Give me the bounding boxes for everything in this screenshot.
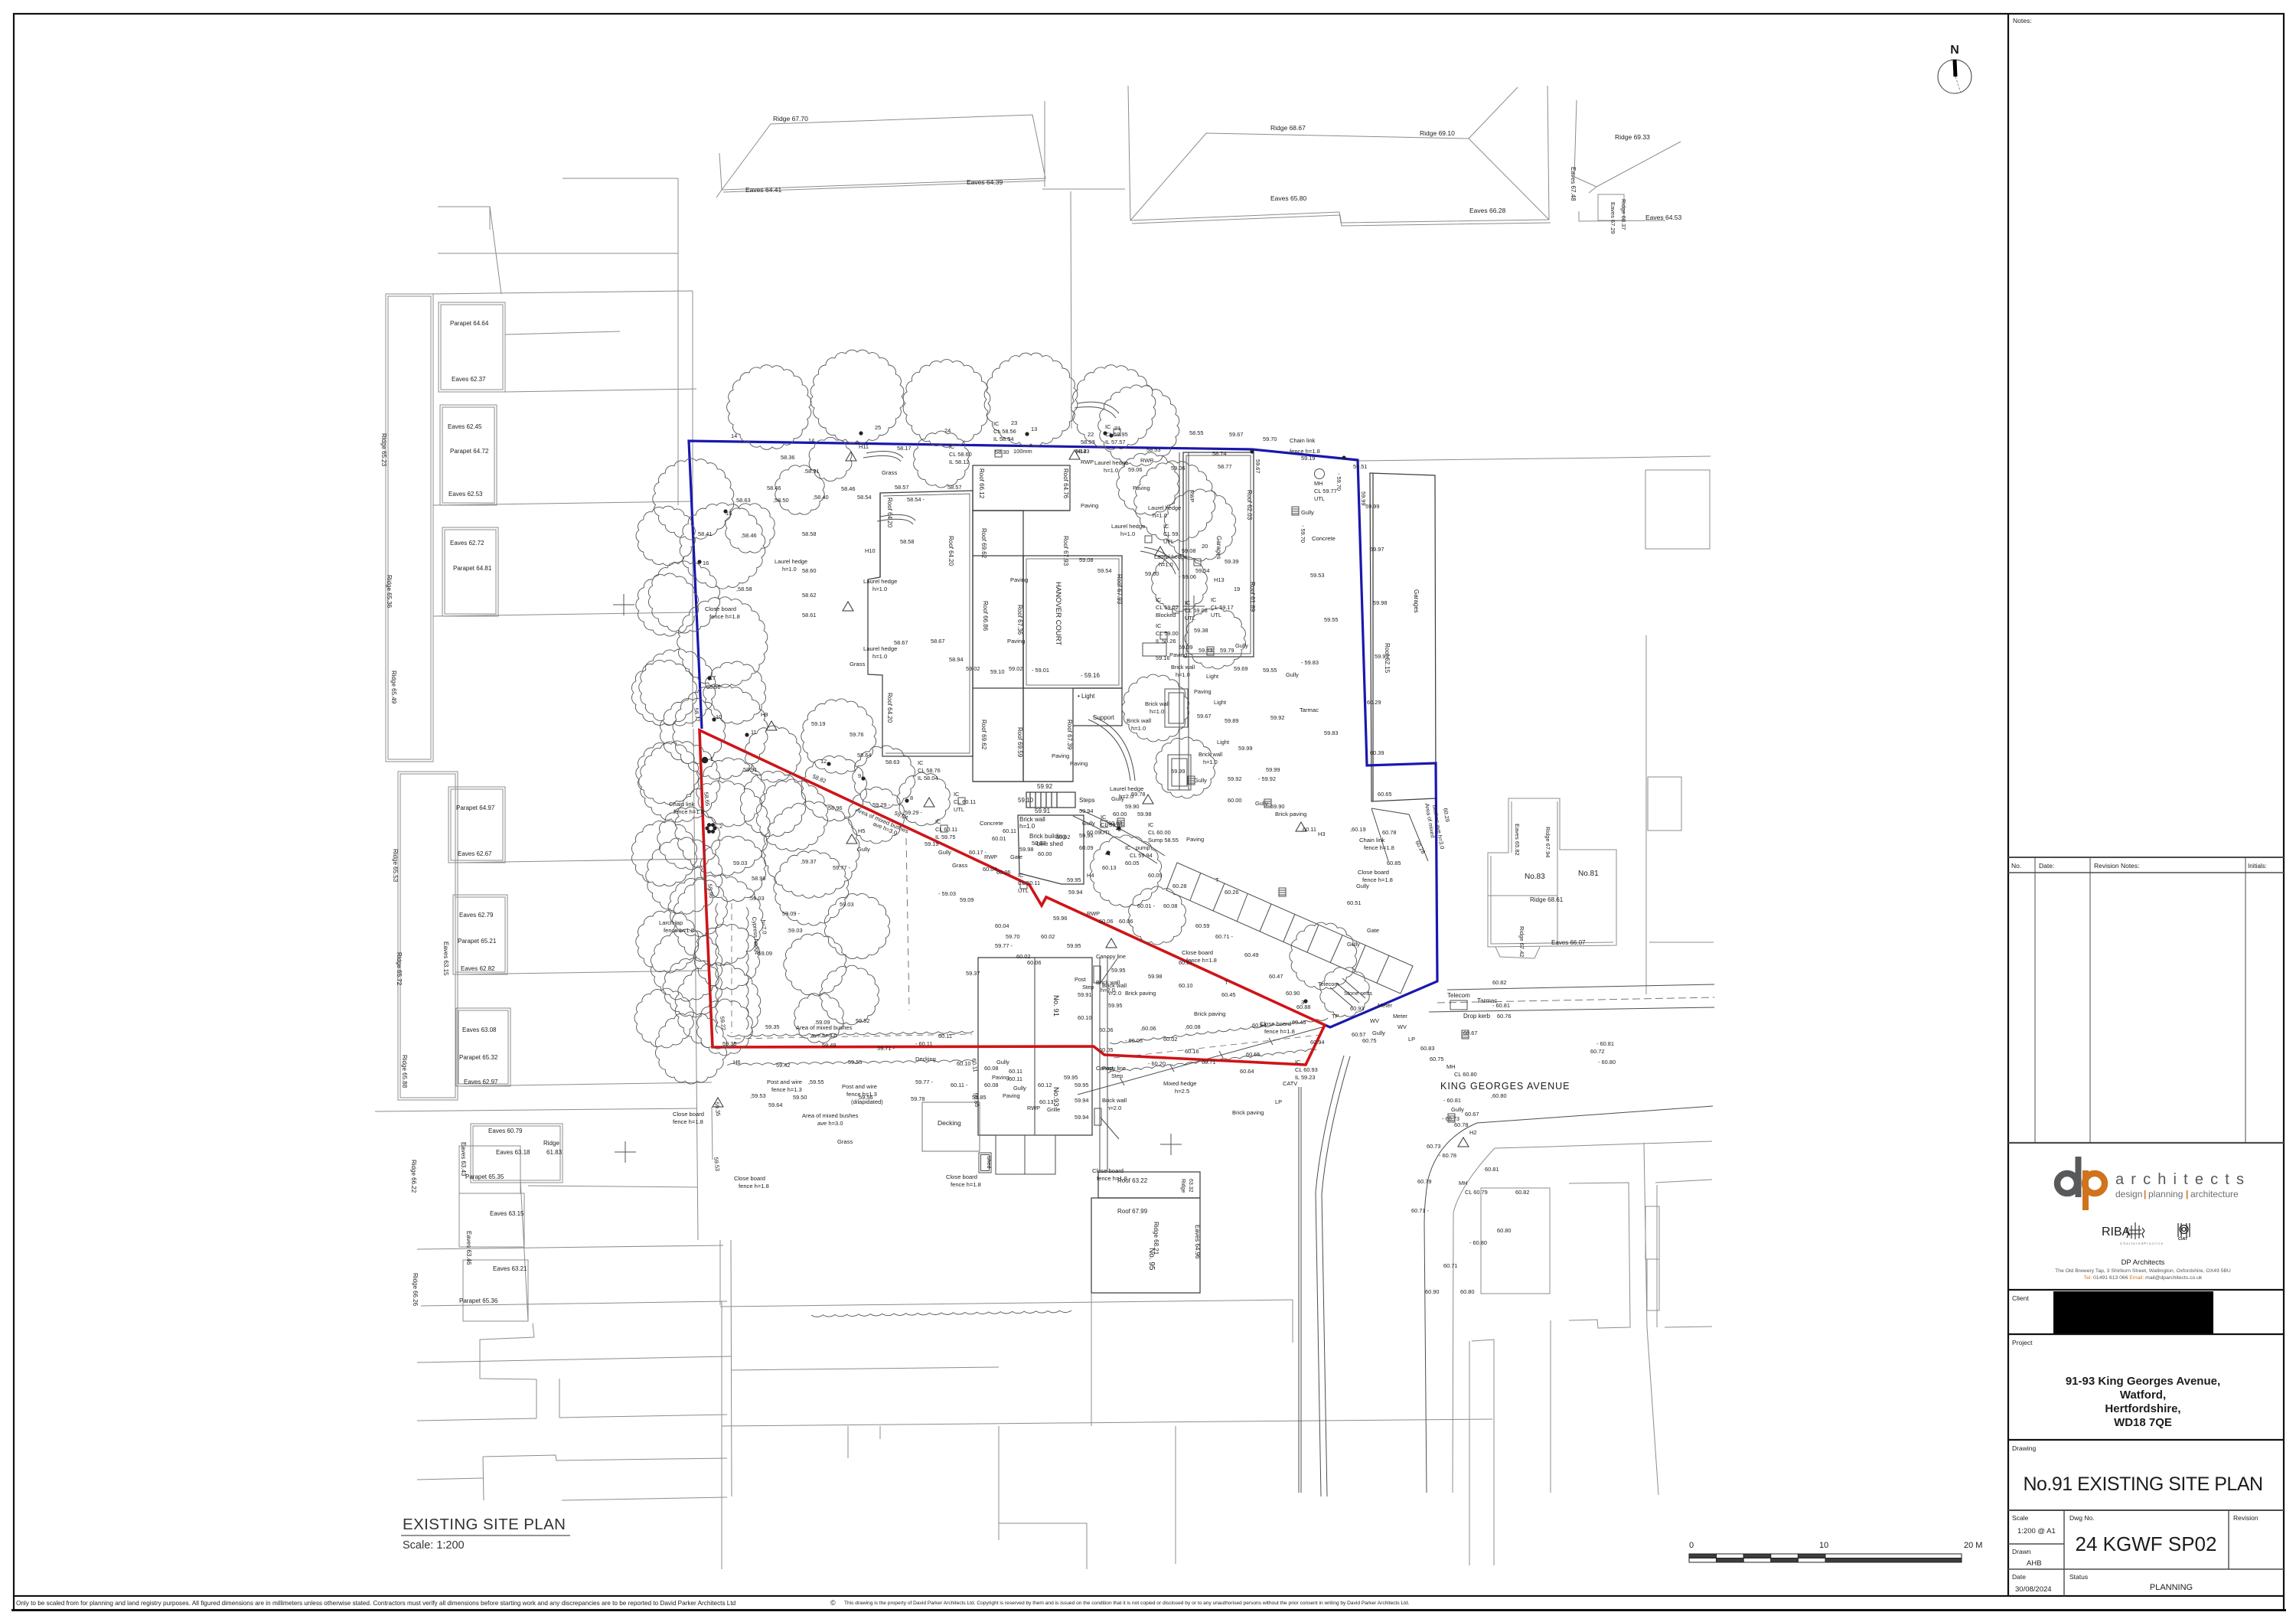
svg-text:60.04: 60.04 <box>983 866 997 873</box>
svg-text:RWP: RWP <box>1140 457 1153 464</box>
svg-text:23: 23 <box>1011 419 1017 426</box>
svg-text:Date:: Date: <box>2039 862 2054 870</box>
svg-text:24: 24 <box>944 427 951 434</box>
svg-text:Ridge 65.23: Ridge 65.23 <box>380 433 387 467</box>
svg-text:H2: H2 <box>1469 1129 1476 1136</box>
svg-text:Eaves 62.53: Eaves 62.53 <box>448 491 483 498</box>
svg-text:Drawing: Drawing <box>2012 1444 2036 1452</box>
svg-text:58.98: 58.98 <box>752 875 766 882</box>
svg-text:Eaves 66.07: Eaves 66.07 <box>1551 939 1586 946</box>
svg-text:Roof 64.20: Roof 64.20 <box>886 693 893 723</box>
svg-text:Post: Post <box>1075 976 1086 983</box>
svg-text:IC: IC <box>949 443 955 450</box>
svg-text:Paving: Paving <box>1010 576 1028 583</box>
svg-text:- 60.20: - 60.20 <box>1148 1060 1166 1067</box>
svg-text:Ridge 68.67: Ridge 68.67 <box>1270 124 1306 132</box>
svg-text:design: design <box>2115 1189 2142 1199</box>
svg-text:Parapet 64.97: Parapet 64.97 <box>456 804 495 811</box>
svg-text:Concrete: Concrete <box>1312 535 1336 542</box>
svg-text:CL 60.93: CL 60.93 <box>1295 1066 1318 1073</box>
svg-text:Laurel hedge: Laurel hedge <box>863 645 897 652</box>
svg-text:24 KGWF SP02: 24 KGWF SP02 <box>2076 1532 2217 1555</box>
svg-text:59.00: 59.00 <box>1145 570 1159 577</box>
svg-text:59.06: 59.06 <box>1171 465 1186 472</box>
svg-text:60.11: 60.11 <box>1009 1075 1022 1082</box>
svg-text:59.56: 59.56 <box>859 1094 873 1101</box>
svg-text:59.97: 59.97 <box>1032 840 1046 847</box>
svg-text:58.57: 58.57 <box>947 484 962 491</box>
svg-text:Close board: Close board <box>734 1175 765 1182</box>
svg-text:58.77: 58.77 <box>1218 463 1232 470</box>
svg-text:59.70: 59.70 <box>1006 933 1020 940</box>
svg-text:60.71: 60.71 <box>1443 1262 1458 1269</box>
svg-text:Telecom: Telecom <box>1318 981 1339 987</box>
svg-text:59.67: 59.67 <box>1229 431 1244 438</box>
svg-text:- 59.03: - 59.03 <box>938 890 956 897</box>
svg-text:59.10: 59.10 <box>1018 797 1034 804</box>
svg-text:14: 14 <box>808 437 814 444</box>
svg-text:59.64: 59.64 <box>768 1101 783 1108</box>
svg-text:59.77 -: 59.77 - <box>995 942 1013 949</box>
svg-text:|: | <box>2144 1189 2146 1199</box>
svg-text:59.55: 59.55 <box>1263 667 1277 674</box>
svg-text:Gully: Gully <box>938 849 951 856</box>
svg-text:IC: IC <box>954 791 960 798</box>
svg-text:CL 58.56: CL 58.56 <box>993 428 1016 435</box>
svg-text:60.49: 60.49 <box>1244 951 1259 958</box>
svg-text:59.67: 59.67 <box>1254 459 1261 474</box>
svg-text:59.95: 59.95 <box>1079 832 1094 839</box>
svg-text:Initials:: Initials: <box>2248 863 2267 870</box>
svg-text:59.99: 59.99 <box>1360 491 1367 506</box>
svg-text:59.97: 59.97 <box>1370 546 1384 553</box>
svg-text:60.75: 60.75 <box>1430 1056 1444 1062</box>
svg-text:60.08: 60.08 <box>984 1065 999 1072</box>
svg-text:- 60.11: - 60.11 <box>915 1040 932 1047</box>
svg-text:Eaves 65.82: Eaves 65.82 <box>1514 824 1521 856</box>
svg-text:UTL: UTL <box>1101 829 1111 836</box>
svg-text:60.45: 60.45 <box>1292 1019 1306 1026</box>
svg-text:Light: Light <box>1214 699 1226 706</box>
svg-text:Eaves 62.72: Eaves 62.72 <box>450 540 484 547</box>
svg-text:63.32: 63.32 <box>1188 1179 1193 1193</box>
svg-text:60.51: 60.51 <box>1347 899 1362 906</box>
svg-text:59.78: 59.78 <box>911 1095 925 1102</box>
svg-text:60.78: 60.78 <box>1382 829 1397 836</box>
svg-text:Light: Light <box>1217 739 1229 746</box>
svg-text:59.16: 59.16 <box>1156 654 1170 661</box>
svg-text:Tarmac: Tarmac <box>1300 707 1319 713</box>
svg-text:fence h=1.3: fence h=1.3 <box>771 1086 802 1093</box>
svg-text:59.92: 59.92 <box>1228 775 1242 782</box>
svg-text:60.75: 60.75 <box>1362 1037 1377 1044</box>
svg-text:Grille: Grille <box>1047 1106 1060 1113</box>
svg-text:59.09 -: 59.09 - <box>782 910 801 917</box>
svg-text:59.49: 59.49 <box>822 1042 837 1049</box>
svg-text:Parapet 64.81: Parapet 64.81 <box>453 565 492 572</box>
svg-text:MH: MH <box>1459 1180 1468 1186</box>
svg-text:h=1.0: h=1.0 <box>1159 561 1173 568</box>
svg-text:59.03: 59.03 <box>840 901 854 908</box>
svg-text:Brick wall: Brick wall <box>1199 751 1223 758</box>
svg-text:- 60.80: - 60.80 <box>1469 1239 1487 1246</box>
svg-text:Gully: Gully <box>1356 883 1369 889</box>
svg-text:TP: TP <box>1332 1013 1339 1020</box>
svg-text:h=2.0: h=2.0 <box>1107 1105 1121 1111</box>
svg-text:60.71 -: 60.71 - <box>1215 933 1234 940</box>
svg-text:59.09: 59.09 <box>960 896 974 903</box>
svg-text:59.10: 59.10 <box>990 668 1005 675</box>
svg-text:58.17: 58.17 <box>897 445 912 452</box>
svg-text:- 60.81: - 60.81 <box>1596 1040 1614 1047</box>
svg-text:60.09: 60.09 <box>1148 872 1163 879</box>
svg-text:60.00: 60.00 <box>1228 797 1242 804</box>
svg-text:60.85: 60.85 <box>1387 860 1401 866</box>
svg-text:60.47: 60.47 <box>1269 973 1283 980</box>
svg-text:58.63: 58.63 <box>885 759 900 765</box>
svg-text:60.73: 60.73 <box>1427 1143 1441 1150</box>
svg-text:Roof 64.76: Roof 64.76 <box>1062 468 1069 499</box>
svg-text:RWP: RWP <box>1027 1105 1040 1111</box>
svg-text:60.00: 60.00 <box>1038 850 1052 857</box>
svg-text:59.90: 59.90 <box>1270 803 1285 810</box>
svg-text:Brick wall: Brick wall <box>1102 1097 1127 1104</box>
svg-text:59.77 -: 59.77 - <box>915 1079 934 1085</box>
svg-text:Parapet 65.35: Parapet 65.35 <box>465 1173 504 1180</box>
svg-text:59.35: 59.35 <box>722 1040 737 1047</box>
svg-text:CL 58.60: CL 58.60 <box>949 451 972 458</box>
svg-text:IC: IC <box>1163 523 1169 530</box>
svg-text:ave h=3.0: ave h=3.0 <box>817 1120 843 1127</box>
svg-text:IC: IC <box>1295 1059 1301 1066</box>
svg-text:58.56: 58.56 <box>706 684 721 690</box>
svg-text:Paving: Paving <box>1169 651 1187 658</box>
svg-text:UTL: UTL <box>1211 612 1221 618</box>
svg-text:60.02: 60.02 <box>1041 933 1055 940</box>
svg-text:59.03: 59.03 <box>733 860 748 866</box>
svg-text:59.19: 59.19 <box>1301 455 1316 462</box>
svg-text:Stone setts: Stone setts <box>1344 990 1372 997</box>
svg-text:h=1.0: h=1.0 <box>1104 467 1118 474</box>
svg-text:59.98: 59.98 <box>1137 811 1152 818</box>
svg-text:Paving: Paving <box>1007 638 1025 645</box>
svg-text:Brick wall: Brick wall <box>1019 816 1045 823</box>
svg-text:RIBA: RIBA <box>2102 1225 2131 1239</box>
svg-text:59.95: 59.95 <box>1111 967 1126 974</box>
svg-text:LP: LP <box>1275 1098 1282 1105</box>
svg-text:60.28: 60.28 <box>1172 883 1187 889</box>
svg-text:,59.53: ,59.53 <box>750 1092 766 1099</box>
svg-text:10: 10 <box>1819 1541 1828 1550</box>
svg-text:- 60.05: - 60.05 <box>1125 1037 1143 1044</box>
svg-text:Close board: Close board <box>946 1173 977 1180</box>
svg-text:59.52: 59.52 <box>856 1017 870 1024</box>
svg-text:Roof 67.93: Roof 67.93 <box>1116 574 1123 605</box>
svg-text:RWP: RWP <box>984 853 997 860</box>
svg-text:Telecom: Telecom <box>1447 992 1470 999</box>
svg-text:WV: WV <box>1397 1023 1407 1030</box>
svg-text:59.94: 59.94 <box>1068 889 1083 896</box>
svg-text:Gully: Gully <box>857 846 870 853</box>
svg-text:59.55: 59.55 <box>848 1059 863 1066</box>
svg-text:CL 60.79: CL 60.79 <box>1465 1189 1488 1196</box>
svg-text:fence h=1.8: fence h=1.8 <box>1364 844 1394 851</box>
svg-text:Scale: 1:200: Scale: 1:200 <box>403 1539 465 1552</box>
svg-text:Roof 64.20: Roof 64.20 <box>947 536 954 566</box>
svg-text:IC: IC <box>1018 872 1024 879</box>
svg-text:Roof 61.89: Roof 61.89 <box>1249 582 1256 612</box>
svg-text:Watford,: Watford, <box>2120 1389 2166 1402</box>
svg-text:16: 16 <box>703 560 709 566</box>
svg-text:ave h=3.0: ave h=3.0 <box>811 1032 837 1039</box>
svg-text:91-93 King Georges Avenue,: 91-93 King Georges Avenue, <box>2066 1375 2220 1388</box>
svg-text:KING GEORGES AVENUE: KING GEORGES AVENUE <box>1440 1081 1570 1092</box>
svg-text:,60.11: ,60.11 <box>1301 826 1316 833</box>
svg-text:60.78: 60.78 <box>1454 1121 1469 1128</box>
svg-text:CL 60.80: CL 60.80 <box>1454 1071 1477 1078</box>
svg-text:59.53: 59.53 <box>1310 572 1325 579</box>
svg-text:,60.08: ,60.08 <box>1185 1023 1201 1030</box>
svg-text:h=7.0: h=7.0 <box>760 919 768 934</box>
svg-text:58.58: 58.58 <box>802 530 817 537</box>
svg-text:30/08/2024: 30/08/2024 <box>2015 1585 2052 1594</box>
svg-text:60.01 -: 60.01 - <box>1137 902 1156 909</box>
svg-text:Ridge: Ridge <box>1180 1179 1186 1193</box>
svg-text:.59.09: .59.09 <box>814 1019 830 1026</box>
svg-text:Eaves 63.15: Eaves 63.15 <box>442 942 449 976</box>
svg-text:RWP: RWP <box>1189 490 1194 503</box>
svg-text:h=1.0: h=1.0 <box>1120 530 1135 537</box>
svg-text:58.53: 58.53 <box>1081 439 1095 445</box>
svg-text:60.64: 60.64 <box>1240 1068 1254 1075</box>
svg-text:Paving: Paving <box>1070 760 1088 767</box>
svg-text:h=1.0: h=1.0 <box>1153 512 1167 519</box>
svg-text:fence h=1.8: fence h=1.8 <box>1264 1028 1295 1035</box>
svg-text:UTL: UTL <box>1314 495 1325 502</box>
svg-text:No. 91: No. 91 <box>1052 995 1060 1017</box>
svg-text:No.83: No.83 <box>1525 873 1545 881</box>
svg-text:60.65: 60.65 <box>1378 791 1392 798</box>
svg-text:planning: planning <box>2148 1189 2183 1199</box>
svg-text:Gully: Gully <box>1013 1085 1026 1092</box>
svg-text:58.55: 58.55 <box>1189 429 1204 436</box>
svg-text:Gully: Gully <box>1235 642 1248 649</box>
svg-text:Close board: Close board <box>673 1111 704 1118</box>
svg-text:59.55: 59.55 <box>1324 616 1339 623</box>
svg-text:Revision: Revision <box>2233 1514 2258 1522</box>
svg-text:Eaves 64.53: Eaves 64.53 <box>1645 214 1682 221</box>
svg-text:- 60.81: - 60.81 <box>1492 1002 1510 1009</box>
svg-text:Gully: Gully <box>1301 509 1314 516</box>
svg-text:60.04: 60.04 <box>995 922 1009 929</box>
svg-text:Step: Step <box>1082 984 1094 990</box>
svg-text:UTL: UTL <box>954 806 964 813</box>
svg-text:WD18 7QE: WD18 7QE <box>2114 1416 2172 1429</box>
svg-text:58.96: 58.96 <box>828 804 843 811</box>
svg-text:Eaves 63.18: Eaves 63.18 <box>496 1149 530 1156</box>
svg-text:60.11: 60.11 <box>938 1033 952 1039</box>
svg-text:Gully: Gully <box>1372 1030 1385 1036</box>
svg-text:,59.55: ,59.55 <box>808 1079 824 1085</box>
svg-text:58.54 -: 58.54 - <box>907 496 925 503</box>
svg-text:60.12: 60.12 <box>1038 1082 1052 1088</box>
svg-text:Roof 69.62: Roof 69.62 <box>980 720 987 750</box>
svg-text:N: N <box>1950 44 1959 57</box>
svg-text:- 59.70: - 59.70 <box>1336 473 1342 491</box>
svg-text:h=1.0: h=1.0 <box>872 653 887 660</box>
svg-text:Eaves 62.79: Eaves 62.79 <box>459 912 494 919</box>
svg-text:The Old Brewery Tap, 3 Shirbur: The Old Brewery Tap, 3 Shirburn Street, … <box>2055 1268 2231 1274</box>
svg-text:IL 58.26: IL 58.26 <box>1156 638 1176 645</box>
svg-text:Roof 62.03: Roof 62.03 <box>1246 490 1253 521</box>
svg-text:61.83: 61.83 <box>546 1149 563 1156</box>
svg-text:H4: H4 <box>1087 872 1094 879</box>
svg-text:60.39: 60.39 <box>1370 749 1384 756</box>
svg-text:60.90: 60.90 <box>1286 990 1300 997</box>
svg-text:,60.06: ,60.06 <box>1140 1025 1156 1032</box>
svg-text:Close board: Close board <box>1182 949 1213 956</box>
svg-text:IL 57.57: IL 57.57 <box>1105 439 1125 445</box>
svg-text:Gully: Gully <box>1286 671 1299 678</box>
svg-text:T: T <box>1225 979 1228 986</box>
svg-text:- 59.06: - 59.06 <box>1179 573 1196 580</box>
svg-text:Eaves 64.96: Eaves 64.96 <box>1194 1225 1201 1259</box>
svg-text:60.72: 60.72 <box>1590 1048 1605 1055</box>
svg-text:.58.31: .58.31 <box>804 468 820 475</box>
svg-text:Ridge 65.72: Ridge 65.72 <box>396 952 403 986</box>
svg-text:60.80: 60.80 <box>1460 1288 1475 1295</box>
svg-text:58.46: 58.46 <box>841 485 856 492</box>
svg-text:60.82: 60.82 <box>1515 1189 1530 1196</box>
svg-text:Eaves 63.15: Eaves 63.15 <box>490 1210 524 1217</box>
svg-text:59.77 -: 59.77 - <box>833 864 851 871</box>
svg-text:60.02: 60.02 <box>1163 1036 1178 1043</box>
svg-text:59.09: 59.09 <box>1179 644 1193 651</box>
svg-text:Roof 67.36: Roof 67.36 <box>1016 605 1023 635</box>
svg-text:59.90: 59.90 <box>1125 803 1140 810</box>
svg-text:0: 0 <box>1689 1541 1694 1550</box>
svg-text:Only to be scaled from for pla: Only to be scaled from for planning and … <box>16 1600 736 1607</box>
svg-text:59.92: 59.92 <box>1056 834 1071 840</box>
svg-text:Brick paving: Brick paving <box>1275 811 1306 818</box>
svg-text:60.10: 60.10 <box>957 1060 971 1067</box>
svg-text:59.71 -: 59.71 - <box>877 1045 895 1052</box>
svg-text:This drawing is the property o: This drawing is the property of David Pa… <box>844 1601 1410 1606</box>
svg-text:60.79: 60.79 <box>1417 1178 1432 1185</box>
svg-text:Notes:: Notes: <box>2013 17 2032 24</box>
svg-text:Gate: Gate <box>1010 853 1022 860</box>
svg-text:IC: IC <box>1101 814 1107 821</box>
svg-text:- 59.70: - 59.70 <box>1300 525 1306 543</box>
svg-text:H10: H10 <box>865 547 876 554</box>
svg-text:60.06: 60.06 <box>1027 959 1042 966</box>
svg-text:60.71 -: 60.71 - <box>1411 1207 1430 1214</box>
svg-text:59.54: 59.54 <box>1195 567 1210 574</box>
svg-text:Chain link: Chain link <box>669 801 695 808</box>
svg-text:Ridge 67.42: Ridge 67.42 <box>1518 926 1525 957</box>
svg-text:Canopy line: Canopy line <box>1096 953 1126 960</box>
svg-text:Eaves 64.39: Eaves 64.39 <box>967 178 1003 186</box>
svg-text:Mixed hedge: Mixed hedge <box>1163 1080 1196 1087</box>
svg-text:Gully: Gully <box>1347 941 1360 948</box>
svg-text:IC: IC <box>1211 596 1217 603</box>
svg-text:• Light: • Light <box>1078 693 1095 700</box>
svg-text:,58.50: ,58.50 <box>773 497 789 504</box>
svg-text:Gully: Gully <box>1451 1106 1464 1113</box>
svg-text:- 59.83: - 59.83 <box>1301 659 1319 666</box>
svg-text:H13: H13 <box>1214 576 1225 583</box>
svg-text:Ridge 69.10: Ridge 69.10 <box>1420 129 1455 137</box>
svg-text:Grass: Grass <box>882 469 897 476</box>
svg-text:,58.46: ,58.46 <box>741 532 757 539</box>
svg-text:DP Architects: DP Architects <box>2122 1258 2165 1267</box>
svg-text:13: 13 <box>1031 426 1037 432</box>
svg-text:59.02: 59.02 <box>1009 665 1023 672</box>
svg-text:,59.37: ,59.37 <box>801 858 817 865</box>
svg-text:Shed: Shed <box>986 1156 991 1168</box>
svg-text:59.95: 59.95 <box>1067 942 1081 949</box>
svg-text:60.65: 60.65 <box>1246 1051 1261 1058</box>
svg-text:CL 60.00: CL 60.00 <box>1148 829 1171 836</box>
svg-text:Parapet 65.32: Parapet 65.32 <box>459 1054 498 1061</box>
svg-text:Paving: Paving <box>1003 1092 1020 1099</box>
svg-text:CL 59.77: CL 59.77 <box>1314 488 1337 494</box>
svg-text:2: 2 <box>719 823 722 830</box>
svg-text:fence h=1.8: fence h=1.8 <box>673 1118 703 1125</box>
svg-text:Decking: Decking <box>938 1119 961 1127</box>
svg-text:60.83: 60.83 <box>1420 1045 1435 1052</box>
svg-text:UTL: UTL <box>1163 538 1174 545</box>
svg-text:Date: Date <box>2012 1573 2026 1581</box>
svg-text:Client: Client <box>2012 1294 2029 1302</box>
svg-text:59.54: 59.54 <box>1097 567 1112 574</box>
svg-text:59.37: 59.37 <box>966 970 980 977</box>
svg-text:58.53: 58.53 <box>1146 446 1161 453</box>
svg-text:Eaves 60.79: Eaves 60.79 <box>488 1128 523 1134</box>
svg-text:H11: H11 <box>859 443 869 450</box>
svg-text:60.13: 60.13 <box>1102 864 1117 871</box>
svg-text:Post and wire: Post and wire <box>842 1083 877 1090</box>
svg-text:Status: Status <box>2069 1573 2088 1581</box>
svg-text:58.41: 58.41 <box>698 530 713 537</box>
svg-text:CL 58.95: CL 58.95 <box>1105 431 1128 438</box>
svg-text:←: ← <box>1293 448 1299 455</box>
svg-text:Laurel hedge: Laurel hedge <box>1148 504 1181 511</box>
svg-text:Brick wall: Brick wall <box>1127 717 1151 724</box>
svg-text:60.06: 60.06 <box>1119 918 1133 925</box>
svg-text:Parapet 65.21: Parapet 65.21 <box>458 938 497 945</box>
svg-text:60.06: 60.06 <box>1099 1026 1114 1033</box>
svg-text:Eaves 63.21: Eaves 63.21 <box>493 1265 527 1272</box>
svg-text:Parapet 64.72: Parapet 64.72 <box>450 448 489 455</box>
svg-text:59.06: 59.06 <box>1128 466 1143 473</box>
svg-text:60.16: 60.16 <box>1185 1048 1199 1055</box>
svg-text:Steps: Steps <box>1079 797 1094 804</box>
svg-text:No.91 EXISTING SITE PLAN: No.91 EXISTING SITE PLAN <box>2023 1474 2262 1495</box>
svg-text:,58.40: ,58.40 <box>813 494 829 501</box>
svg-text:59.02: 59.02 <box>966 665 980 672</box>
svg-text:,60.19: ,60.19 <box>1350 826 1366 833</box>
svg-text:58.94: 58.94 <box>949 656 964 663</box>
svg-text:Paving: Paving <box>1081 502 1098 509</box>
svg-text:Roof 67.93: Roof 67.93 <box>1062 536 1069 566</box>
svg-text:60.90: 60.90 <box>1425 1288 1440 1295</box>
svg-text:22: 22 <box>1088 431 1094 438</box>
svg-text:59.99: 59.99 <box>1266 766 1280 773</box>
svg-text:No.: No. <box>2011 862 2021 870</box>
svg-text:59.69: 59.69 <box>1234 665 1248 672</box>
svg-text:Tel: 01491 613 066 Email: mail: Tel: 01491 613 066 Email: mail@dparchite… <box>2084 1275 2203 1281</box>
